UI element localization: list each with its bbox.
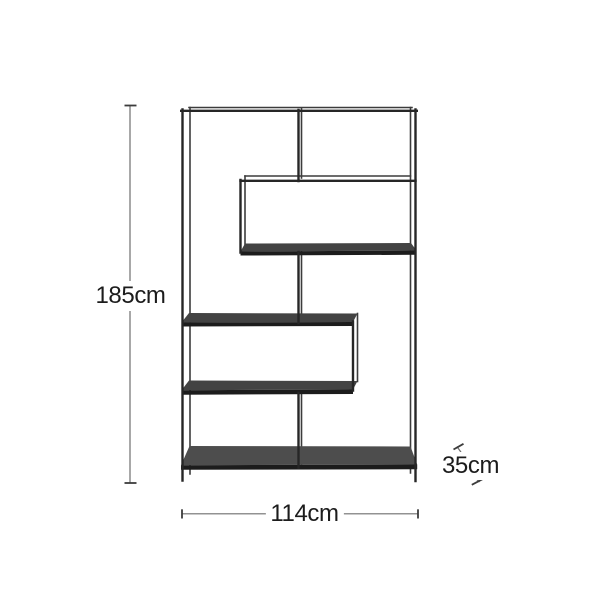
frame-back-lines <box>189 108 412 475</box>
shelf-panel-middle-bottom <box>182 381 358 391</box>
height-dimension-label: 185cm <box>90 281 170 311</box>
shelf-panel-upper <box>241 243 417 252</box>
dimension-diagram: 185cm 114cm 35cm <box>0 0 600 600</box>
depth-dimension-label: 35cm <box>440 452 501 480</box>
shelf-panel-middle-top <box>182 313 358 323</box>
width-dimension-label: 114cm <box>265 499 343 529</box>
frame-front-lines <box>181 110 417 482</box>
